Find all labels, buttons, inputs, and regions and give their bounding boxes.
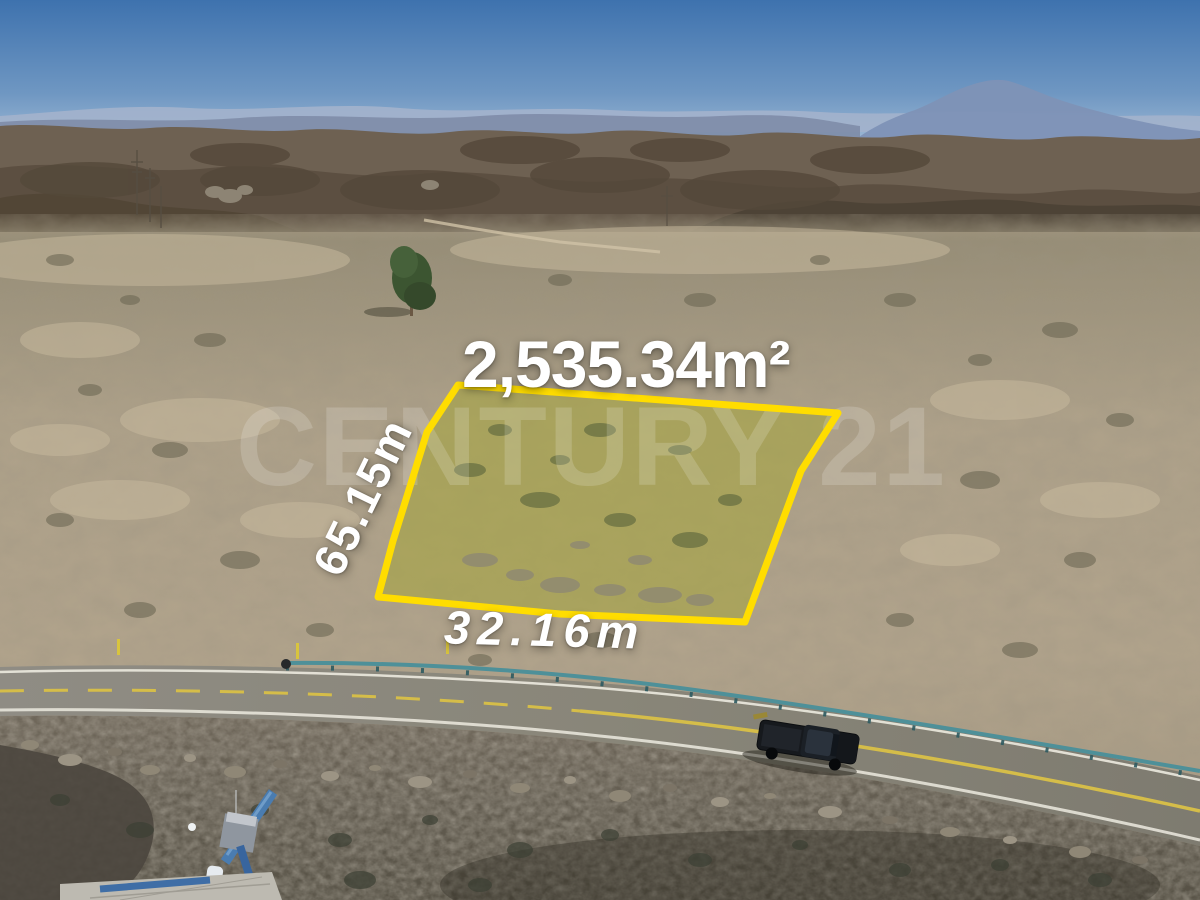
lot-frontage-length-label: 32.16m (443, 599, 646, 659)
guardrail-end-terminal (281, 659, 291, 669)
aerial-photo: CENTURY 21 2,535.34m² 65.15m 32.16m (0, 0, 1200, 900)
truck-cab-roof (804, 729, 833, 757)
lot-area-label: 2,535.34m² (462, 326, 790, 402)
